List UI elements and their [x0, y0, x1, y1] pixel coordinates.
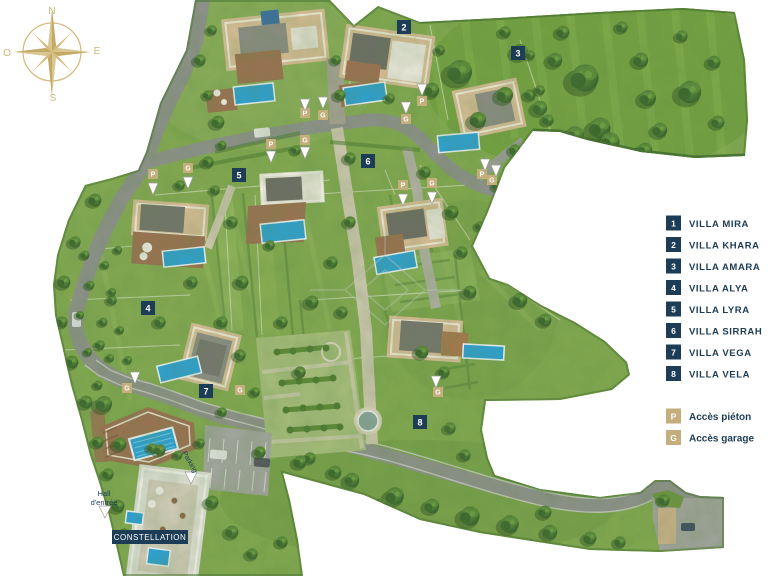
svg-text:VILLA VELA: VILLA VELA	[689, 370, 750, 381]
svg-text:G: G	[302, 138, 308, 145]
svg-text:5: 5	[236, 171, 241, 181]
svg-text:P: P	[401, 183, 406, 190]
svg-text:P: P	[151, 172, 156, 179]
svg-text:2: 2	[401, 23, 406, 33]
svg-text:8: 8	[417, 418, 422, 428]
svg-text:7: 7	[671, 348, 676, 358]
svg-text:G: G	[124, 386, 130, 393]
svg-text:Accès piéton: Accès piéton	[689, 412, 751, 423]
svg-text:G: G	[320, 113, 326, 120]
svg-text:4: 4	[145, 304, 150, 314]
svg-text:VILLA LYRA: VILLA LYRA	[689, 305, 750, 316]
svg-text:3: 3	[515, 49, 520, 59]
svg-text:5: 5	[671, 305, 676, 315]
svg-text:Hall: Hall	[98, 489, 111, 498]
svg-text:6: 6	[365, 157, 370, 167]
svg-text:2: 2	[671, 240, 676, 250]
svg-text:Accès garage: Accès garage	[689, 434, 754, 445]
svg-text:P: P	[303, 111, 308, 118]
svg-text:P: P	[420, 99, 425, 106]
svg-text:G: G	[185, 166, 191, 173]
svg-text:VILLA KHARA: VILLA KHARA	[689, 241, 760, 252]
svg-text:VILLA MIRA: VILLA MIRA	[689, 219, 749, 230]
svg-text:E: E	[94, 46, 101, 57]
svg-text:P: P	[480, 172, 485, 179]
svg-text:S: S	[50, 93, 57, 104]
svg-text:d'entrée: d'entrée	[91, 498, 118, 507]
svg-text:P: P	[671, 412, 677, 422]
svg-text:6: 6	[671, 326, 676, 336]
svg-text:1: 1	[671, 219, 676, 229]
svg-text:G: G	[403, 117, 409, 124]
svg-text:4: 4	[671, 283, 676, 293]
svg-text:7: 7	[203, 387, 208, 397]
svg-text:G: G	[429, 181, 435, 188]
svg-text:N: N	[48, 6, 55, 17]
svg-text:VILLA AMARA: VILLA AMARA	[689, 262, 760, 273]
svg-text:8: 8	[671, 369, 676, 379]
svg-text:VILLA SIRRAH: VILLA SIRRAH	[689, 327, 762, 338]
svg-text:P: P	[269, 142, 274, 149]
svg-text:G: G	[489, 178, 495, 185]
svg-text:G: G	[435, 390, 441, 397]
svg-text:VILLA VEGA: VILLA VEGA	[689, 348, 752, 359]
svg-text:CONSTELLATION: CONSTELLATION	[114, 533, 187, 542]
svg-text:G: G	[670, 433, 677, 443]
svg-text:VILLA ALYA: VILLA ALYA	[689, 284, 749, 295]
svg-text:3: 3	[671, 262, 676, 272]
svg-text:G: G	[237, 388, 243, 395]
svg-text:O: O	[3, 48, 11, 59]
